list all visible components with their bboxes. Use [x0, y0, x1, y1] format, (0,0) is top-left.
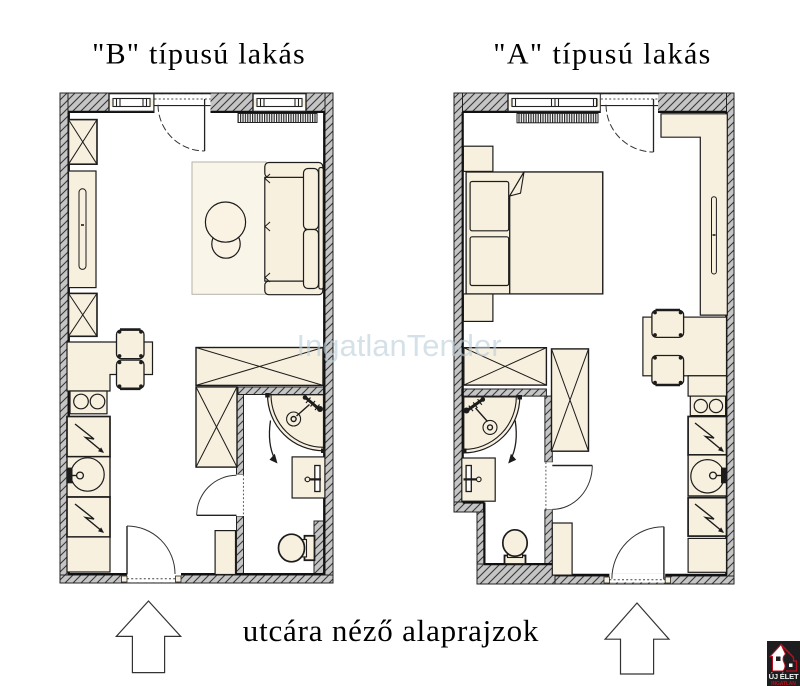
svg-text:ÚJ ÉLET: ÚJ ÉLET: [769, 672, 799, 681]
svg-text:utcára néző alaprajzok: utcára néző alaprajzok: [243, 613, 539, 648]
svg-text:INGATLAN: INGATLAN: [771, 681, 796, 686]
svg-text:"B" típusú lakás: "B" típusú lakás: [92, 38, 306, 71]
svg-text:"A" típusú lakás: "A" típusú lakás: [493, 38, 712, 71]
svg-text:IngatlanTender: IngatlanTender: [296, 328, 501, 363]
